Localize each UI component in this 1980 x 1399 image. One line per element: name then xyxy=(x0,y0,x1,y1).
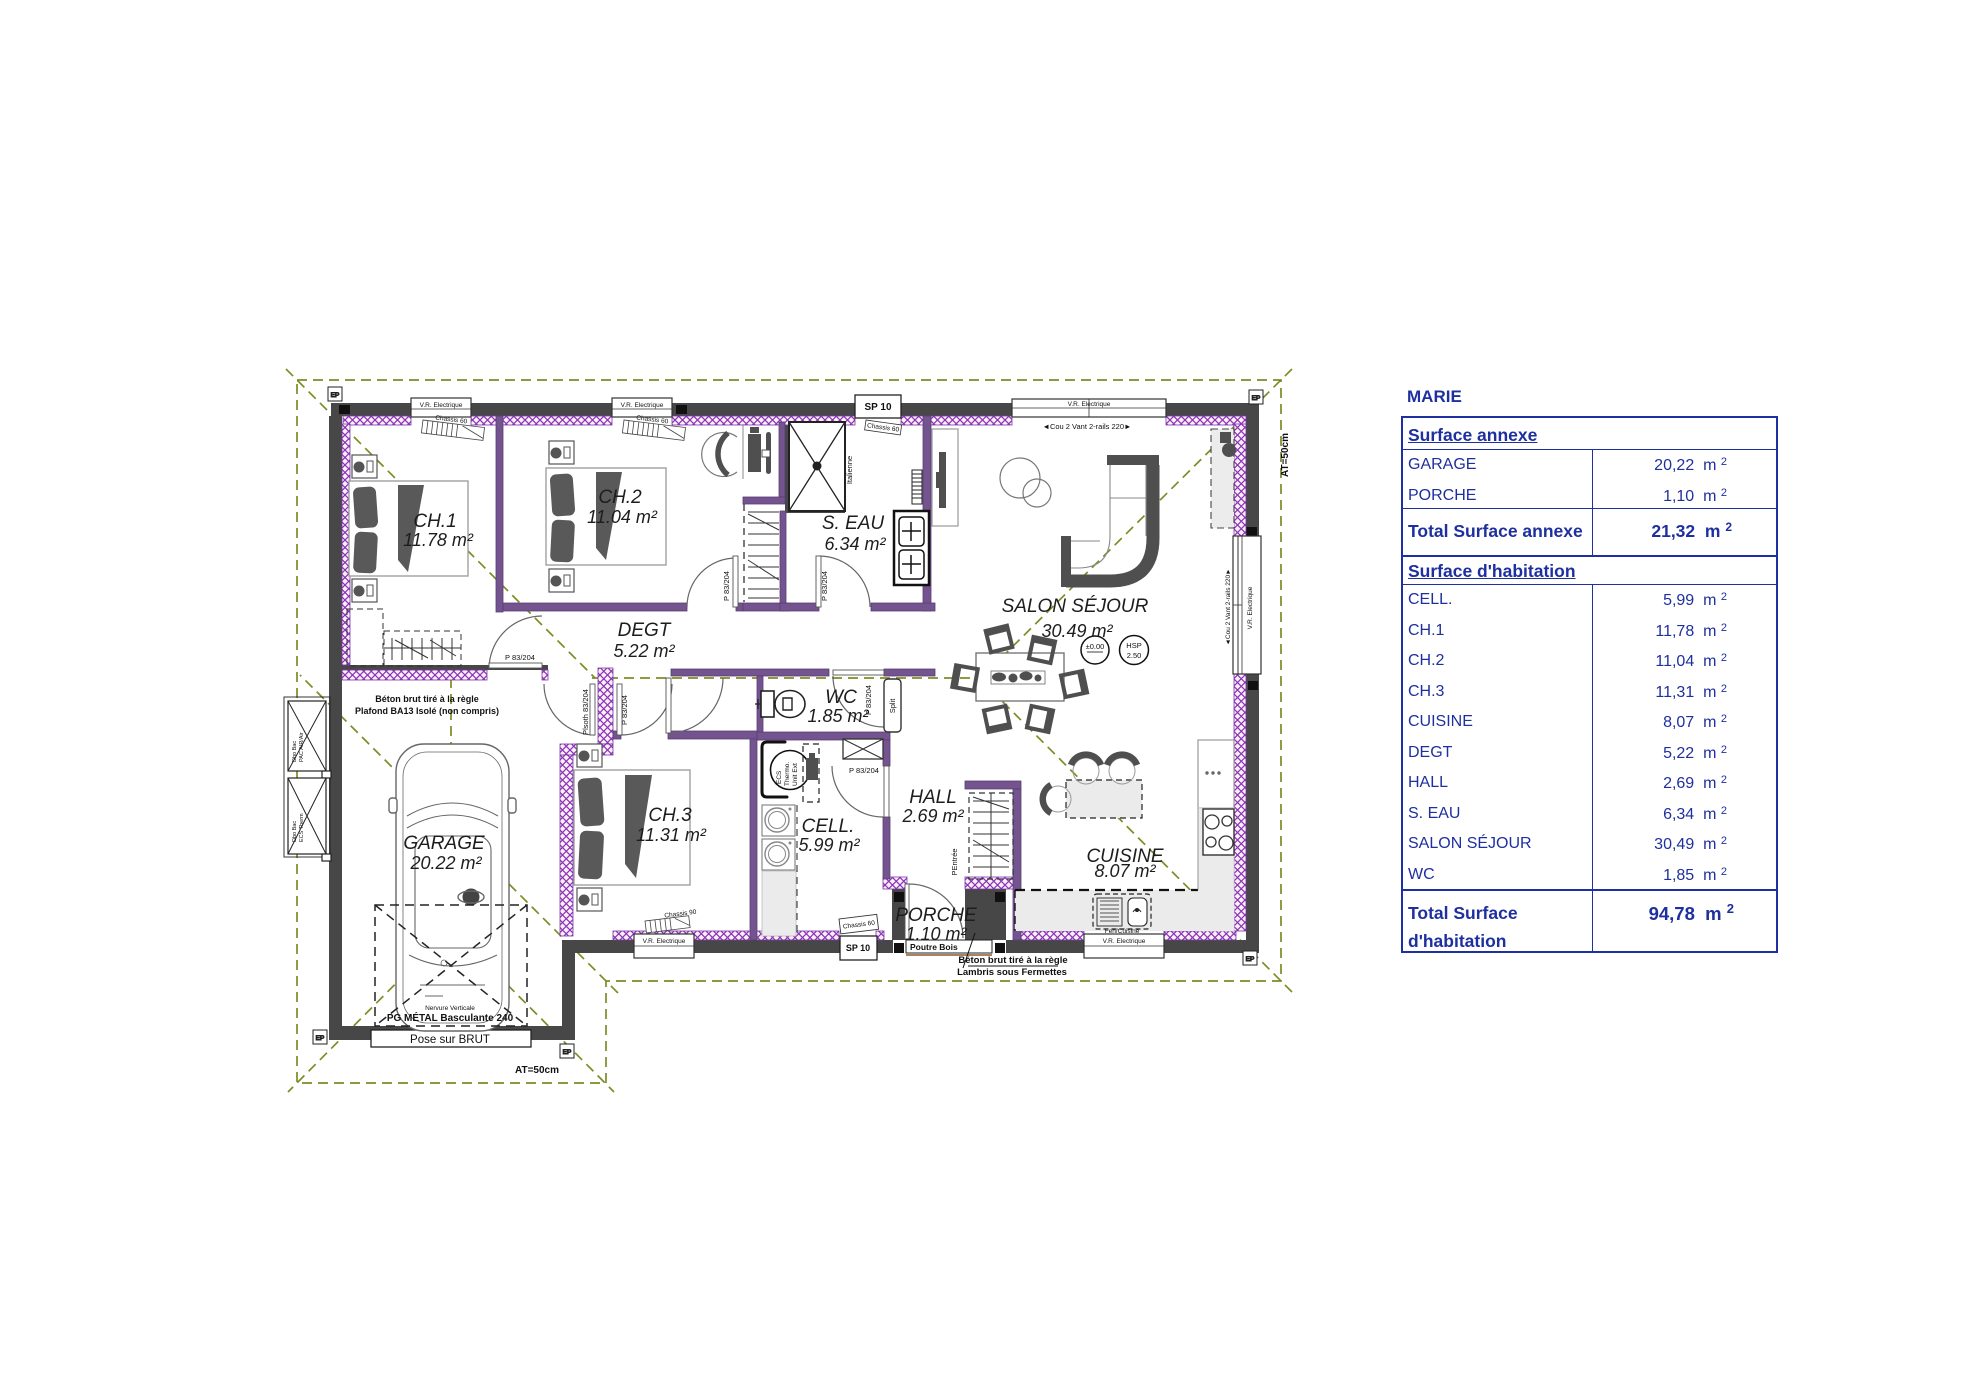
svg-text:V.R. Electrique: V.R. Electrique xyxy=(621,402,664,409)
svg-text:EP: EP xyxy=(1246,956,1255,963)
svg-text:SP 10: SP 10 xyxy=(846,943,870,953)
svg-text:GARAGE: GARAGE xyxy=(403,833,485,854)
svg-text:20.22 m²: 20.22 m² xyxy=(409,853,482,873)
svg-text:PEntrée: PEntrée xyxy=(950,848,959,875)
svg-text:DEGT: DEGT xyxy=(618,620,672,641)
svg-text:EP: EP xyxy=(331,392,340,399)
svg-text:P 83/204: P 83/204 xyxy=(722,571,731,601)
svg-text:P 83/204: P 83/204 xyxy=(620,695,629,725)
svg-text:EP: EP xyxy=(1252,395,1261,402)
svg-text:P 83/204: P 83/204 xyxy=(849,766,879,775)
svg-text:Lambris sous Fermettes: Lambris sous Fermettes xyxy=(957,967,1067,978)
svg-text:SP 10: SP 10 xyxy=(864,402,891,413)
svg-text:HSP: HSP xyxy=(1126,641,1141,650)
svg-text:◄Cou 2 Vant 2-rails 220►: ◄Cou 2 Vant 2-rails 220► xyxy=(1043,422,1132,431)
svg-text:±0.00: ±0.00 xyxy=(1086,642,1105,651)
svg-text:11.78 m²: 11.78 m² xyxy=(403,530,474,550)
svg-text:1.85 m²: 1.85 m² xyxy=(807,706,869,726)
svg-text:V.R. Electrique: V.R. Electrique xyxy=(420,402,463,409)
svg-text:Plafond BA13 Isolé (non compri: Plafond BA13 Isolé (non compris) xyxy=(355,706,499,716)
svg-text:PORCHE: PORCHE xyxy=(895,905,977,926)
svg-text:SALON SÉJOUR: SALON SÉJOUR xyxy=(1002,596,1149,617)
svg-text:V.R. Electrique: V.R. Electrique xyxy=(1068,401,1111,408)
svg-text:EP: EP xyxy=(316,1035,325,1042)
svg-text:ECS: ECS xyxy=(776,770,783,784)
svg-text:CH.3: CH.3 xyxy=(648,805,692,826)
svg-text:Thermo.: Thermo. xyxy=(784,762,791,786)
svg-text:PAC AIR/Air: PAC AIR/Air xyxy=(299,732,305,762)
svg-text:CH.1: CH.1 xyxy=(413,511,456,532)
svg-text:CH.2: CH.2 xyxy=(598,487,642,508)
svg-text:Nervure Verticale: Nervure Verticale xyxy=(425,1005,475,1012)
svg-text:Dbo Bac: Dbo Bac xyxy=(292,821,298,842)
svg-text:V.R. Electrique: V.R. Electrique xyxy=(1247,586,1254,629)
svg-text:Béton brut tiré à la règle: Béton brut tiré à la règle xyxy=(375,694,479,704)
svg-text:6.34 m²: 6.34 m² xyxy=(824,534,886,554)
svg-text:11.31 m²: 11.31 m² xyxy=(636,825,707,845)
svg-text:5.22 m²: 5.22 m² xyxy=(613,641,675,661)
svg-text:PG MÉTAL Basculante 240: PG MÉTAL Basculante 240 xyxy=(387,1011,514,1024)
svg-text:CELL.: CELL. xyxy=(802,816,855,837)
svg-text:Pose sur BRUT: Pose sur BRUT xyxy=(410,1034,490,1046)
svg-text:HALL: HALL xyxy=(909,787,957,808)
svg-text:Split: Split xyxy=(888,698,897,714)
svg-text:Plsoth 83/204: Plsoth 83/204 xyxy=(581,689,590,735)
svg-text:P 83/204: P 83/204 xyxy=(505,653,535,662)
svg-text:V.R. Electrique: V.R. Electrique xyxy=(1103,938,1146,945)
svg-text:11.04 m²: 11.04 m² xyxy=(587,507,658,527)
svg-text:5.99 m²: 5.99 m² xyxy=(798,835,860,855)
svg-text:EP: EP xyxy=(563,1049,572,1056)
svg-text:ECS Therm: ECS Therm xyxy=(299,813,305,842)
svg-text:AT=50cm: AT=50cm xyxy=(515,1065,559,1076)
svg-text:S. EAU: S. EAU xyxy=(822,513,885,534)
svg-text:Italienne: Italienne xyxy=(845,456,854,484)
svg-text:Unit Ext: Unit Ext xyxy=(792,763,799,786)
svg-text:2.50: 2.50 xyxy=(1127,651,1142,660)
svg-text:2.69 m²: 2.69 m² xyxy=(901,806,964,826)
svg-text:1.10 m²: 1.10 m² xyxy=(905,924,967,944)
svg-text:◄Cou 2 Vant 2-rails 220►: ◄Cou 2 Vant 2-rails 220► xyxy=(1225,568,1232,645)
svg-text:P 83/204: P 83/204 xyxy=(820,571,829,601)
svg-text:Béton brut tiré à la règle: Béton brut tiré à la règle xyxy=(958,955,1067,966)
svg-text:Fen/Cuisine: Fen/Cuisine xyxy=(1105,928,1140,935)
svg-text:30.49 m²: 30.49 m² xyxy=(1041,621,1113,641)
svg-text:Dbo Bac: Dbo Bac xyxy=(292,741,298,762)
svg-text:8.07 m²: 8.07 m² xyxy=(1094,861,1156,881)
svg-text:V.R. Electrique: V.R. Electrique xyxy=(643,938,686,945)
svg-text:WC: WC xyxy=(825,687,857,708)
svg-text:AT=50cm: AT=50cm xyxy=(1280,433,1291,477)
